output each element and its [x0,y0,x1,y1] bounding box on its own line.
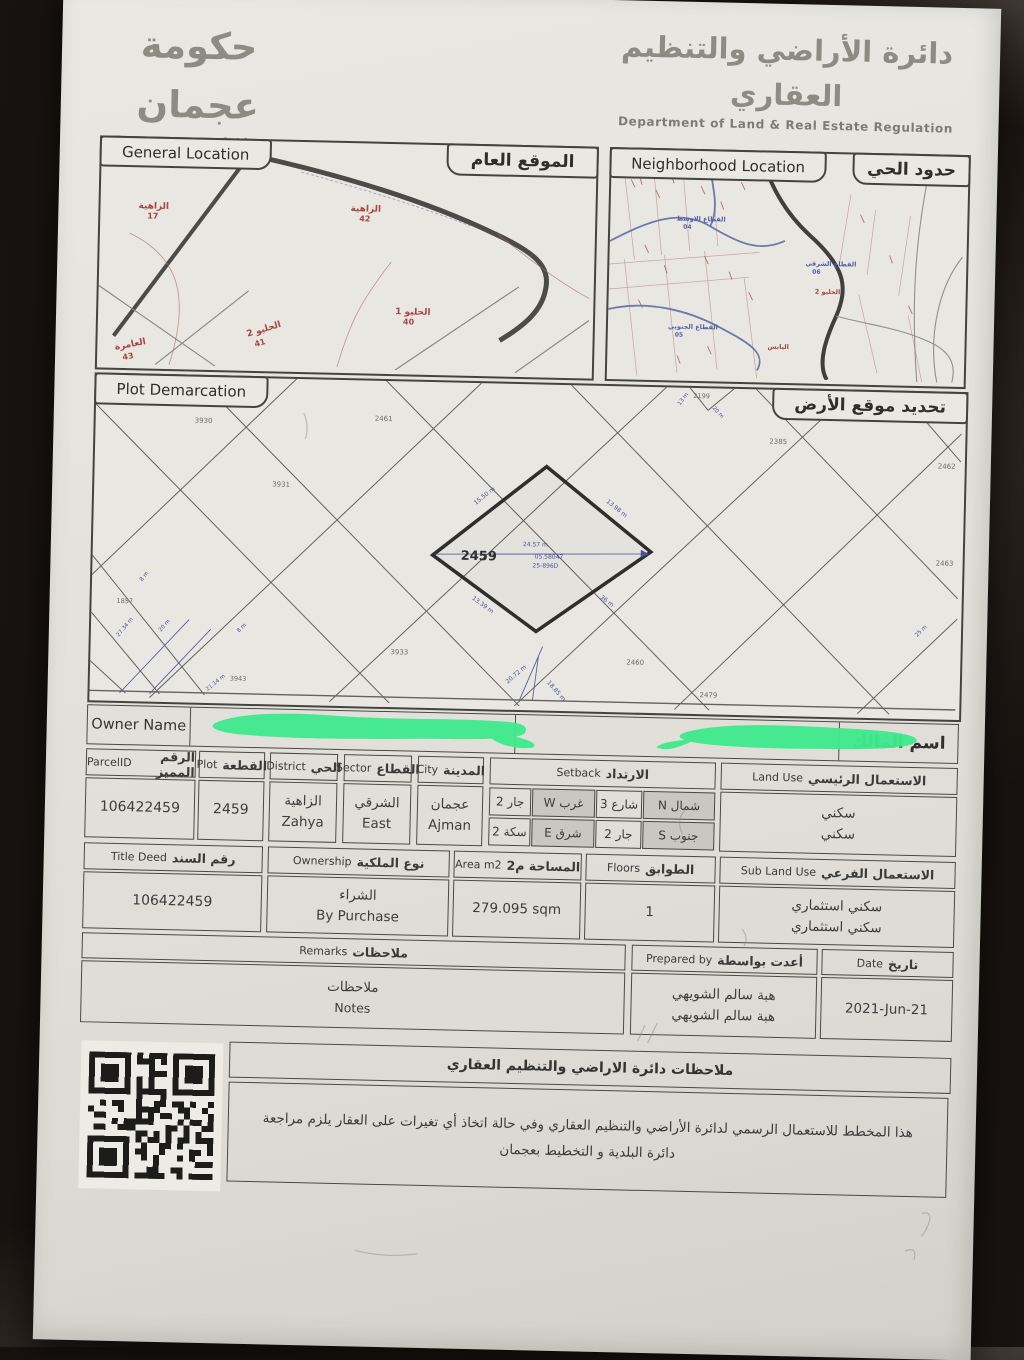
setback-cell-north: شمال N [643,791,716,821]
sector-value: الشرقي East [342,783,411,845]
gov-ajman-logo-arabic: حكومة عجمان [107,15,290,137]
sub-land-use-label-en: Sub Land Use [741,864,817,879]
floors-value: 1 [584,883,715,943]
street-dimension: 8 m [139,571,150,583]
qr-code-image [86,1051,215,1180]
sector-number: 04 [683,224,692,231]
land-use-line: سكني [821,824,856,846]
area-number: 41 [253,337,267,349]
area-number: 43 [122,351,135,362]
plot-annotation: 24.57 m [523,541,548,549]
plot-annotation: 05.58047 [535,553,564,561]
area-label: الزاهية [350,204,381,215]
parcel-number: 2460 [626,658,644,666]
city-value-ar: عجمان [430,794,469,816]
parcel-number: 2479 [699,691,717,699]
district-value: الزاهية Zahya [268,781,337,843]
remarks-label-en: Remarks [299,944,347,958]
area-label-ar: المساحة م2 [506,858,580,875]
street-dimension: 21.14 m [205,674,227,693]
sector-number: 05 [675,331,684,338]
redaction-marker [679,723,917,751]
parcel-id-value: 106422459 [84,777,195,839]
parcel-id-label-ar: الرقم المميز [136,748,195,779]
date-label-en: Date [857,956,884,970]
area-label: الحليو 1 [395,307,431,318]
highlighted-plot-number: 2459 [460,549,497,565]
plot-demarcation-title-en: Plot Demarcation [94,372,269,408]
land-use-value: سكني سكني [719,792,957,857]
street-dimension: 20 m [711,406,725,420]
sector-number: 06 [812,269,821,276]
land-use-label-en: Land Use [752,770,803,784]
sub-land-use-line: سكني استثماري [791,895,882,918]
plot-label-en: Plot [196,758,217,771]
sector-label-ar: القطاع [376,761,420,777]
district-header: Districtالحي [270,752,339,781]
area-number: 17 [147,211,158,220]
department-logo-arabic: دائرة الأراضي والتنظيم العقاري [616,24,958,122]
setback-label-ar: الارتداد [606,766,650,782]
parcel-number: 2385 [769,438,787,446]
department-logo: دائرة الأراضي والتنظيم العقاري Departmen… [615,24,957,136]
district-value-ar: الزاهية [284,791,322,813]
qr-code [78,1040,223,1191]
area-number: 42 [359,214,370,223]
ownership-label-ar: نوع الملكية [356,854,424,871]
sub-land-use-line: سكني استثماري [791,916,882,939]
street-dimension: 8 m [236,622,248,634]
prepared-by-label-ar: أعدت بواسطة [717,952,803,969]
department-notes-body: هذا المخطط للاستعمال الرسمي لدائرة الأرا… [226,1082,948,1198]
prepared-by-line: هبة سالم الشويهي [671,1005,775,1028]
prepared-by-value: هبة سالم الشويهي هبة سالم الشويهي [630,973,817,1039]
street-dimension: 18.85 m [545,679,567,703]
street-dimension: 27.34 m [116,617,135,638]
parcel-number: 2463 [936,559,954,567]
plot-demarcation-title-ar: تحديد موقع الأرض [772,388,969,424]
prepared-by-header: Prepared byأعدت بواسطة [631,945,818,975]
floors-label-ar: الطوابق [645,861,695,877]
title-deed-header: Title Deedرقم السند [83,842,263,873]
parcel-number: 3931 [272,480,290,488]
area-value: 279.095 sqm [452,880,581,940]
floors-header: Floorsالطوابق [585,854,716,884]
plot-header: Plotالقطعة [199,751,266,779]
redaction-marker [213,712,527,743]
setback-cell: جار 2 [595,820,642,849]
road-name-marks [300,172,471,226]
plot-value: 2459 [197,780,264,841]
plot-number-marks [627,174,915,368]
date-label-ar: تاريخ [888,956,919,972]
city-header: Cityالمدينة [418,756,485,784]
area-label: الزاهية [138,201,169,212]
city-value-en: Ajman [428,815,471,837]
parcel-id-label-en: ParcelID [87,755,132,769]
sector-value-ar: الشرقي [354,792,400,814]
title-deed-label-en: Title Deed [111,850,167,864]
ownership-value-ar: الشراء [339,885,377,907]
parcel-number: 2462 [938,462,956,470]
plot-label-ar: القطعة [222,757,267,773]
redaction-marker-tail [656,739,690,750]
ownership-label-en: Ownership [293,854,352,868]
sector-label: القطاع الاوسط [676,214,725,223]
street-lines [89,549,207,695]
sector-label: القطاع الشرقي [805,259,856,268]
land-use-header: Land Useالاستعمال الرئيسي [720,763,958,795]
parcel-number: 2461 [375,415,393,423]
setback-label-en: Setback [556,766,601,780]
street-dimension: 20.72 m [505,664,529,686]
parcel-number: 3933 [390,648,408,656]
plot-annotation: 25-896D [532,562,558,570]
prepared-by-label-en: Prepared by [646,952,713,966]
city-label-ar: المدينة [443,762,485,778]
district-label-en: District [266,759,306,773]
remarks-label-ar: ملاحظات [352,944,408,960]
gov-ajman-logo: حكومة عجمان Government of Ajman [107,15,290,151]
area-label: الحليو 2 [815,288,841,297]
land-use-line: سكني [821,803,856,825]
edge-dimension: 15.50 m [473,485,497,506]
setback-cell-south: جنوب S [642,821,715,851]
setback-cell: جار 2 [489,787,532,816]
city-label-en: City [416,763,438,776]
title-deed-value: 106422459 [82,871,262,932]
ownership-header: Ownershipنوع الملكية [267,846,450,877]
setback-cell-east: شرق E [531,818,595,847]
date-value: 2021-Jun-21 [820,977,953,1042]
area-label-en: Area m2 [455,858,502,872]
plot-demarcation-map: 2459 24.57 m 05.58047 25-896D 15.50 m 13… [89,374,962,716]
district-value-en: Zahya [281,812,324,834]
setback-cell: شارع 3 [596,790,643,819]
secondary-roads [835,154,965,383]
parcel-number: 3930 [195,417,213,425]
setback-header: Setbackالارتداد [489,757,716,789]
area-number: 40 [403,317,415,326]
parcel-number: 1857 [116,597,133,605]
parcel-number: 3943 [230,674,247,682]
area-header: Area m2المساحة م2 [453,851,582,881]
parcel-number: 2199 [693,392,710,400]
sub-land-use-value: سكني استثماري سكني استثماري [718,886,955,948]
sector-label: القطاع الجنوبي [668,322,718,331]
parcel-id-header: ParcelIDالرقم المميز [86,748,197,777]
remarks-value: ملاحظات Notes [80,960,625,1034]
setback-cell-west: غرب W [532,788,596,817]
dimension-lines [119,618,543,703]
street-dimension: 25 m [914,624,928,638]
plot-demarcation-panel: 2459 24.57 m 05.58047 25-896D 15.50 m 13… [87,372,968,722]
boundary-road [114,152,250,339]
sub-land-use-header: Sub Land Useالاستعمال الفرعي [719,857,956,889]
title-deed-label-ar: رقم السند [172,850,236,866]
ownership-value-en: By Purchase [316,905,399,928]
sector-label-en: Sector [336,761,372,775]
sector-header: Sectorالقطاع [344,754,413,783]
document-paper: حكومة عجمان Government of Ajman دائرة ال… [33,0,1001,1360]
area-label: الحليو 2 [246,320,283,340]
neighborhood-location-title-en: Neighborhood Location [609,147,827,183]
setback-cell: سكة 2 [488,817,531,846]
blue-roads [607,149,787,371]
sector-value-en: East [362,814,392,836]
street-dimension: 13 m [677,392,690,407]
area-label: اليابس [767,343,789,351]
street-dimension: 20 m [158,619,172,634]
prepared-by-line: هبة سالم الشويهي [672,984,776,1007]
sub-land-use-label-ar: الاستعمال الفرعي [821,865,935,883]
neighborhood-location-title-ar: حدود الحي [852,152,971,187]
general-location-title-en: General Location [99,135,272,170]
remarks-value-en: Notes [334,998,371,1018]
edge-dimension: 36 m [599,594,616,609]
floors-label-en: Floors [607,861,640,875]
area-label: العامرة [114,337,147,353]
remarks-value-ar: ملاحظات [327,977,379,999]
land-use-label-ar: الاستعمال الرئيسي [808,771,927,789]
date-header: Dateتاريخ [821,949,954,978]
city-value: عجمان Ajman [416,785,483,846]
general-location-title-ar: الموقع العام [446,143,599,178]
ownership-value: الشراء By Purchase [266,875,449,936]
